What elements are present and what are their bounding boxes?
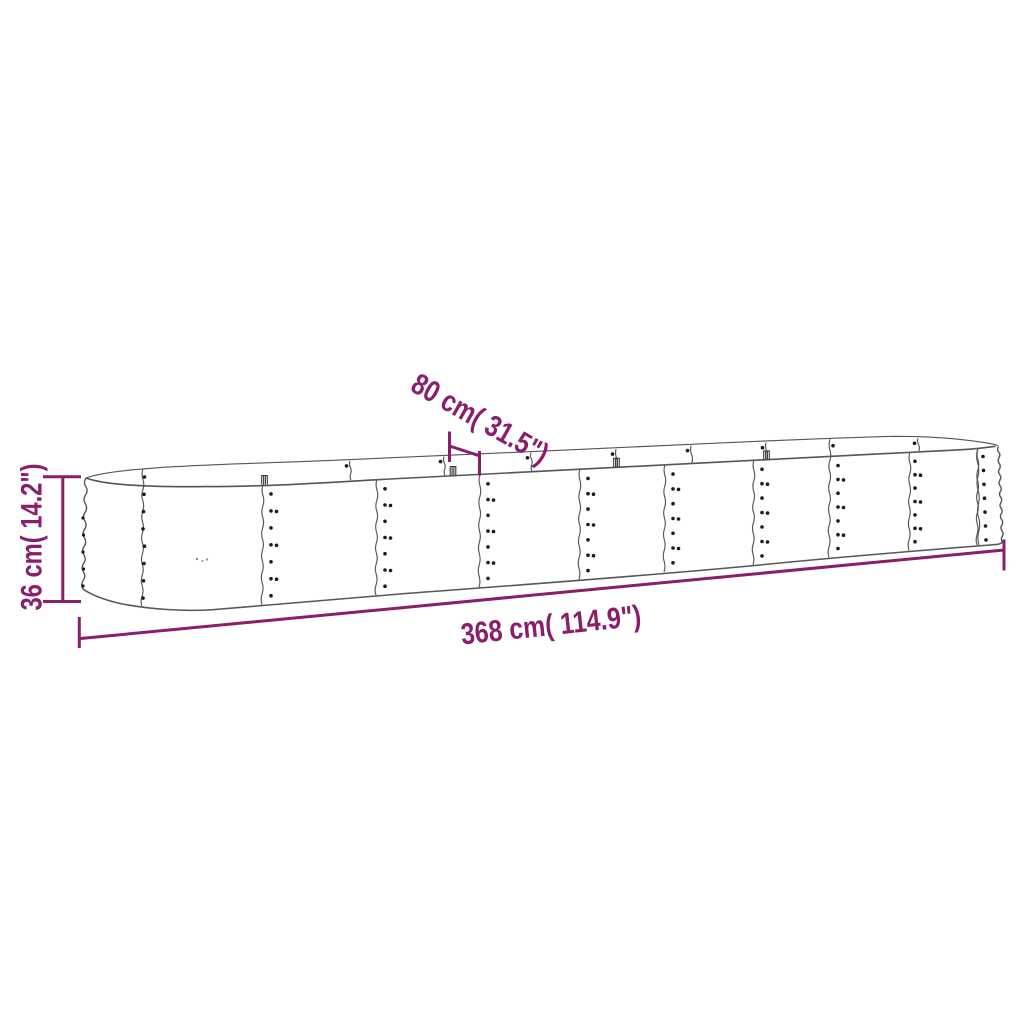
- svg-text:36 cm( 14.2"): 36 cm( 14.2"): [16, 464, 49, 611]
